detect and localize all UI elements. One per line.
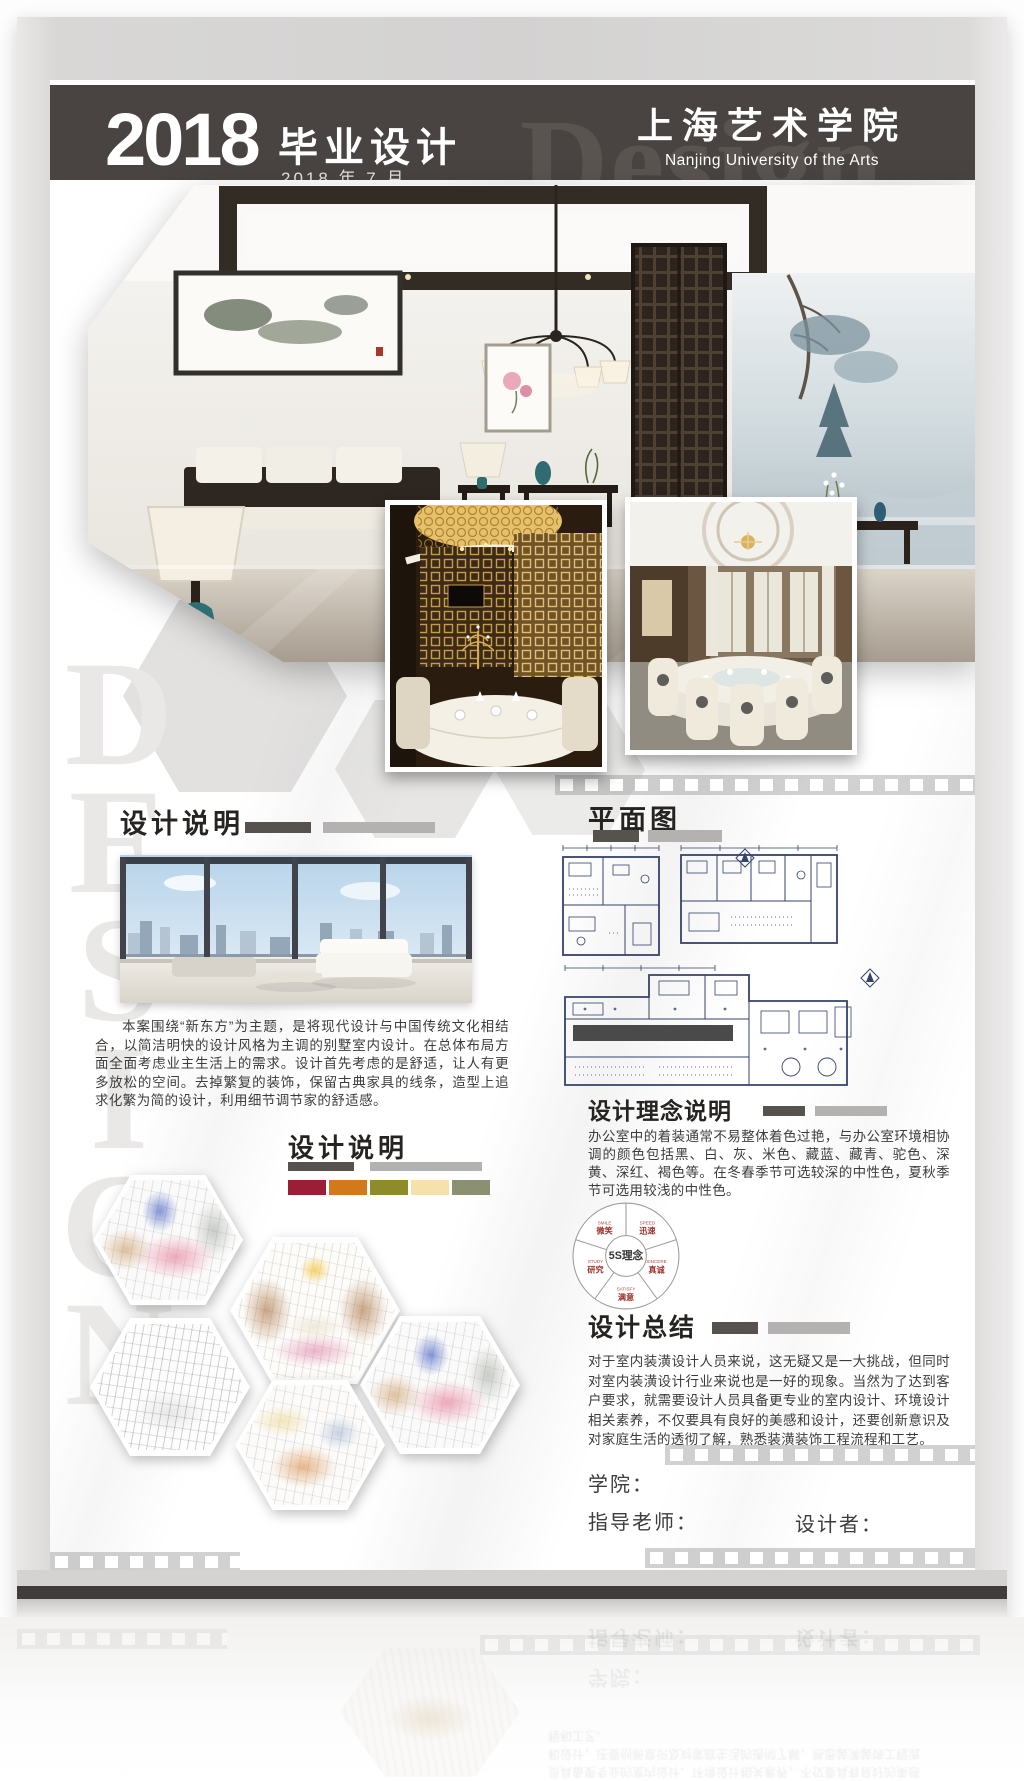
palette-swatch	[329, 1180, 367, 1195]
title-bar-dark	[288, 1162, 354, 1171]
compass-icon	[860, 968, 880, 988]
palette-swatch	[370, 1180, 408, 1195]
five-s-en: SPEED	[640, 1220, 656, 1225]
poster-body: Design 2018 毕业设计 2018 年 7 月 上海艺术学院 Nanji…	[50, 80, 975, 1570]
sheet-bottom-fade	[17, 1599, 1007, 1617]
dining-photo-1	[385, 500, 607, 772]
floor-plan-3	[555, 963, 857, 1091]
concept-paragraph: 办公室中的着装通常不易整体着色过艳，与办公室环境相协调的颜色包括黑、白、灰、米色…	[588, 1128, 950, 1200]
five-s-en: SMILE	[598, 1220, 612, 1225]
school-name-cn: 上海艺术学院	[637, 97, 907, 149]
five-s-center-label: 5S理念	[609, 1249, 644, 1262]
sheet-bottom-dark-strip	[17, 1586, 1007, 1599]
sketch-hexagon-bedroom	[93, 1175, 243, 1305]
film-strip	[555, 775, 975, 795]
city-view-illustration	[120, 855, 472, 1003]
advisor-label: 指导老师：	[588, 1506, 698, 1535]
section-title-design-desc-2: 设计说明	[288, 1128, 408, 1165]
school-name-block: 上海艺术学院 Nanjing University of the Arts	[637, 97, 907, 170]
reflection-film-strip	[480, 1635, 980, 1655]
title-bar-dark	[593, 830, 639, 842]
reflection-area: 指导老师： 设计者： 学院： 对于室内装潢设计人员来说，这无疑又是一大挑战，但同…	[0, 1617, 1024, 1781]
title-bar-light	[815, 1106, 887, 1116]
designer-label: 设计者：	[795, 1508, 883, 1537]
reflection-summary-text: 对于室内装潢设计人员来说，这无疑又是一大挑战，但同时对室内装潢设计行业来说也是一…	[548, 1727, 928, 1781]
header-band: Design 2018 毕业设计 2018 年 7 月 上海艺术学院 Nanji…	[50, 85, 975, 180]
floor-plan-1	[555, 843, 667, 961]
poster-canvas: Design 2018 毕业设计 2018 年 7 月 上海艺术学院 Nanji…	[0, 0, 1024, 1781]
five-s-cn: 微笑	[595, 1226, 613, 1236]
college-label: 学院：	[588, 1468, 654, 1497]
year-text: 2018	[105, 97, 258, 180]
reflection-film-strip	[17, 1629, 227, 1649]
sheet-bottom-light-band	[17, 1570, 1007, 1586]
five-s-en: STUDY	[588, 1259, 604, 1264]
date-text: 2018 年 7 月	[281, 164, 406, 180]
title-bar-dark	[245, 822, 311, 833]
film-strip	[645, 1548, 975, 1568]
film-strip	[50, 1552, 240, 1570]
five-s-cn: 研究	[587, 1264, 603, 1274]
dining-room-round-table-illustration	[630, 502, 852, 750]
design-desc-paragraph: 本案围绕“新东方”为主题，是将现代设计与中国传统文化相结合，以简洁明快的设计风格…	[95, 1018, 509, 1111]
five-s-cn: 满意	[618, 1292, 634, 1302]
title-bar-light	[370, 1162, 482, 1171]
summary-paragraph: 对于室内装潢设计人员来说，这无疑又是一大挑战，但同时对室内装潢设计行业来说也是一…	[588, 1352, 950, 1450]
palette-swatch	[452, 1180, 490, 1195]
title-bar-light	[648, 830, 722, 842]
reflection-college: 学院：	[588, 1665, 654, 1694]
dining-photo-2	[625, 497, 857, 755]
five-s-diagram: 5S理念 SMILE 微笑 SPEED 迅速 SINCERE 真诚 SATISF…	[570, 1200, 682, 1312]
title-bar-light	[768, 1322, 850, 1334]
floor-plan-2	[675, 843, 843, 949]
sketch-hexagon-linework	[90, 1318, 250, 1456]
color-palette	[288, 1180, 490, 1195]
five-s-cn: 迅速	[639, 1226, 656, 1236]
section-title-design-desc: 设计说明	[120, 802, 244, 841]
dining-room-gold-illustration	[390, 505, 602, 767]
five-s-en: SATISFY	[617, 1287, 636, 1292]
title-bar-dark	[763, 1106, 805, 1116]
palette-swatch	[288, 1180, 326, 1195]
modern-living-photo	[120, 855, 472, 1003]
title-bar-dark	[712, 1322, 758, 1334]
palette-swatch	[411, 1180, 449, 1195]
school-name-en: Nanjing University of the Arts	[637, 152, 907, 170]
reflection-sketch-hexagon	[340, 1647, 520, 1777]
five-s-en: SINCERE	[646, 1259, 666, 1264]
section-title-summary: 设计总结	[588, 1308, 696, 1344]
section-title-concept: 设计理念说明	[588, 1092, 732, 1126]
title-bar-light	[323, 822, 435, 833]
sketch-hexagon-warm	[235, 1380, 385, 1510]
five-s-cn: 真诚	[648, 1264, 665, 1274]
